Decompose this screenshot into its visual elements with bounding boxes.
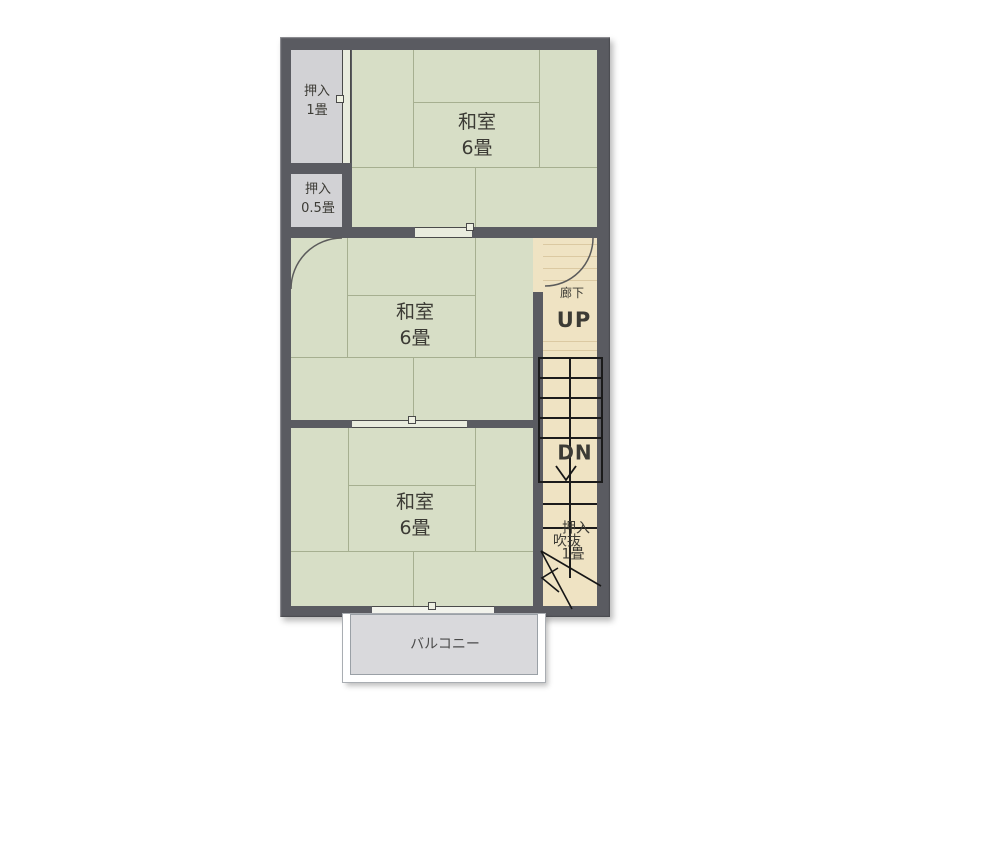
tatami-line — [413, 50, 414, 167]
dn-text: DN — [557, 440, 592, 467]
closet-label-05jo: 押入 0.5畳 — [301, 180, 335, 218]
wall-top-mid-left — [342, 227, 415, 238]
hallway-name: 廊下 — [560, 285, 584, 301]
stair-tread-faint — [543, 350, 597, 351]
door-handle — [408, 416, 416, 424]
wall-mid-bottom-left — [291, 420, 352, 428]
tatami-line — [413, 551, 414, 606]
stair-tread-faint — [543, 341, 597, 342]
room-size: 6畳 — [396, 515, 434, 541]
stairs-up-label: UP — [557, 306, 591, 334]
tatami-line — [413, 102, 539, 103]
up-text: UP — [557, 306, 591, 334]
wall-under-closet1 — [291, 163, 352, 174]
tatami-line — [475, 167, 476, 227]
tatami-line — [475, 238, 476, 357]
stair-tread-faint — [543, 280, 597, 281]
tatami-line — [348, 428, 349, 551]
lower-closet-line3: 1畳 — [562, 546, 585, 565]
room-label-washitsu-middle: 和室 6畳 — [396, 299, 434, 351]
room-name: 和室 — [458, 109, 496, 135]
room-name: 和室 — [396, 489, 434, 515]
tatami-line — [539, 50, 540, 167]
stair-tread-faint — [543, 244, 597, 245]
door-handle — [466, 223, 474, 231]
stairs-down-label: DN — [557, 440, 592, 467]
stair-tread-faint — [543, 268, 597, 269]
tatami-line — [347, 295, 475, 296]
door-handle — [336, 95, 344, 103]
hallway-doorway-gap — [533, 238, 543, 292]
room-name: 和室 — [396, 299, 434, 325]
balcony-name: バルコニー — [410, 636, 480, 655]
tatami-line — [291, 357, 533, 358]
closet-size: 1畳 — [304, 101, 330, 120]
tatami-line — [348, 485, 475, 486]
tatami-line — [475, 428, 476, 551]
tatami-line — [347, 238, 348, 357]
lower-closet-label-size: 1畳 — [562, 546, 585, 565]
hallway-label: 廊下 — [560, 285, 584, 301]
tatami-line — [413, 357, 414, 420]
room-label-washitsu-bottom: 和室 6畳 — [396, 489, 434, 541]
wall-top-mid-right — [472, 227, 597, 238]
stair-tread-faint — [543, 256, 597, 257]
closet-name: 押入 — [304, 82, 330, 101]
room-label-washitsu-top: 和室 6畳 — [458, 109, 496, 161]
closet-label-1jo: 押入 1畳 — [304, 82, 330, 120]
sliding-door-top-middle — [415, 227, 472, 238]
sliding-door-closet1 — [342, 50, 351, 163]
door-handle — [428, 602, 436, 610]
wall-mid-bottom-right — [467, 420, 533, 428]
floor-plan: 和室 6畳 和室 6畳 和室 6畳 押入 1畳 押入 0.5畳 廊下 UP DN… — [0, 0, 987, 851]
room-size: 6畳 — [396, 325, 434, 351]
tatami-line — [291, 551, 533, 552]
closet-size: 0.5畳 — [301, 199, 335, 218]
balcony-label: バルコニー — [410, 636, 480, 655]
room-size: 6畳 — [458, 135, 496, 161]
closet-name: 押入 — [301, 180, 335, 199]
